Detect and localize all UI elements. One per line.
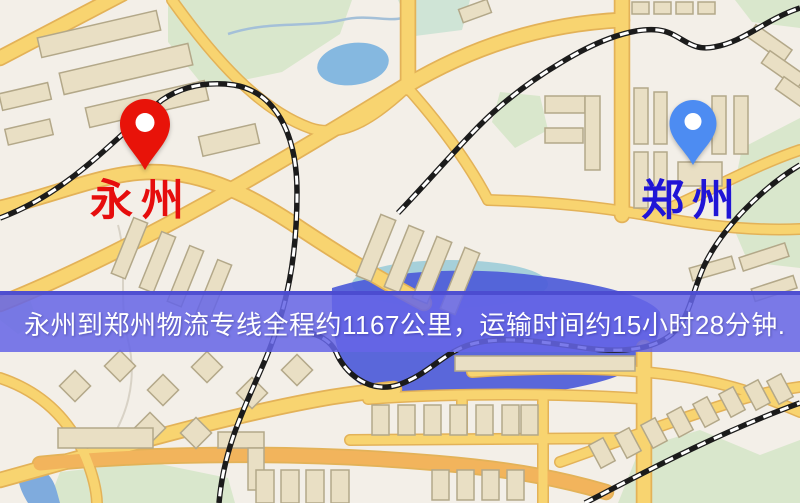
map-canvas: [0, 0, 800, 503]
destination-pin-icon[interactable]: [663, 97, 723, 169]
route-summary-text: 永州到郑州物流专线全程约1167公里，运输时间约15小时28分钟.: [0, 305, 785, 342]
origin-city-label: 永州: [90, 180, 192, 223]
origin-pin-icon[interactable]: [113, 96, 177, 174]
route-summary-banner: 永州到郑州物流专线全程约1167公里，运输时间约15小时28分钟.: [0, 291, 800, 352]
destination-city-label: 郑州: [641, 180, 743, 223]
map-screenshot: 永州 郑州 永州到郑州物流专线全程约1167公里，运输时间约15小时28分钟.: [0, 0, 800, 503]
